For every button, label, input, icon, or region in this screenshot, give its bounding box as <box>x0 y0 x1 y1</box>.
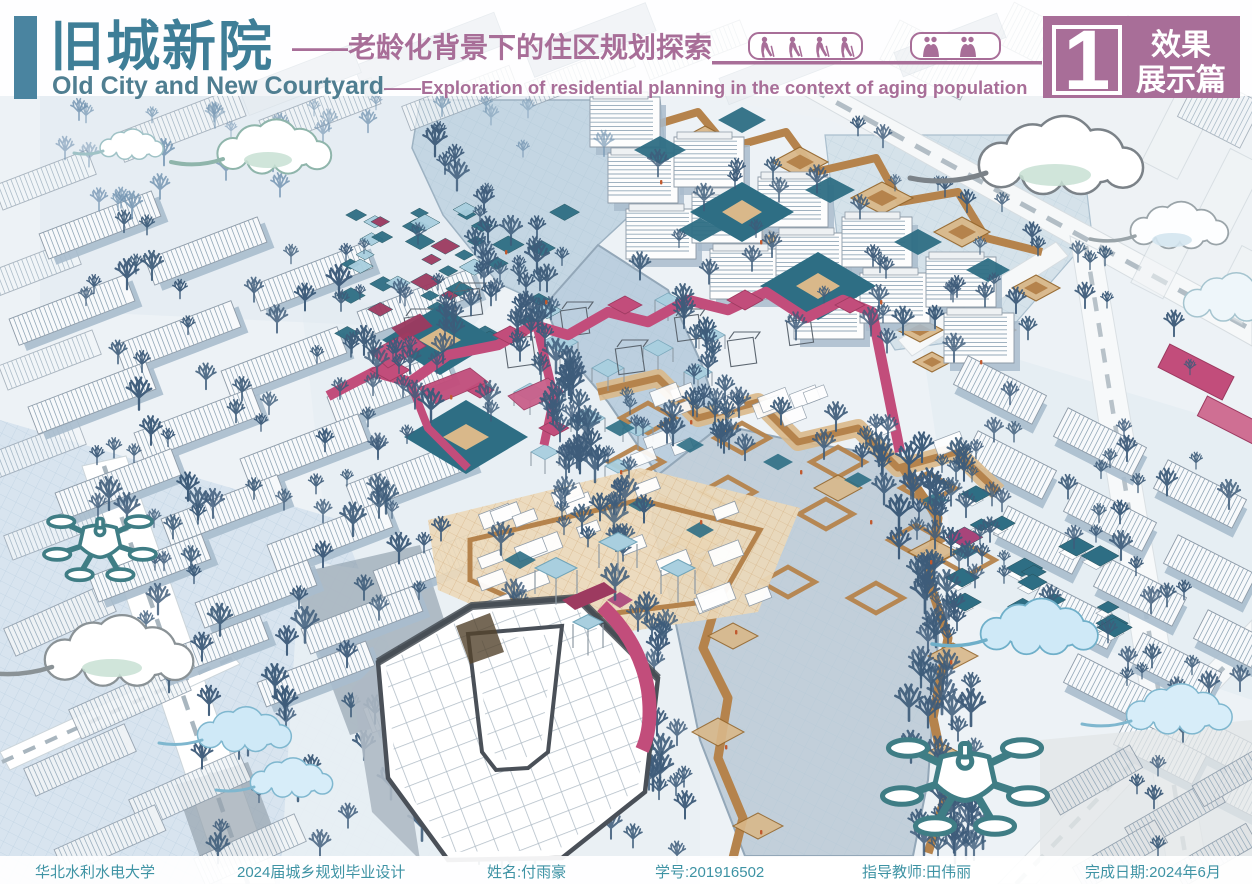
svg-text:效果: 效果 <box>1151 29 1211 62</box>
svg-text:完成日期:2024年6月: 完成日期:2024年6月 <box>1085 864 1221 881</box>
svg-text:学号:201916502: 学号:201916502 <box>655 864 764 881</box>
svg-text:展示篇: 展示篇 <box>1136 64 1226 97</box>
svg-text:2024届城乡规划毕业设计: 2024届城乡规划毕业设计 <box>237 864 405 881</box>
svg-text:旧城新院: 旧城新院 <box>50 17 274 77</box>
svg-text:1: 1 <box>1064 13 1111 107</box>
svg-text:华北水利水电大学: 华北水利水电大学 <box>35 864 155 881</box>
svg-text:Old City and New Courtyard——Ex: Old City and New Courtyard——Exploration … <box>52 72 1027 100</box>
svg-text:姓名:付雨豪: 姓名:付雨豪 <box>487 863 566 881</box>
svg-text:——老龄化背景下的住区规划探索: ——老龄化背景下的住区规划探索 <box>292 31 712 63</box>
svg-text:指导教师:田伟丽: 指导教师:田伟丽 <box>862 864 971 881</box>
